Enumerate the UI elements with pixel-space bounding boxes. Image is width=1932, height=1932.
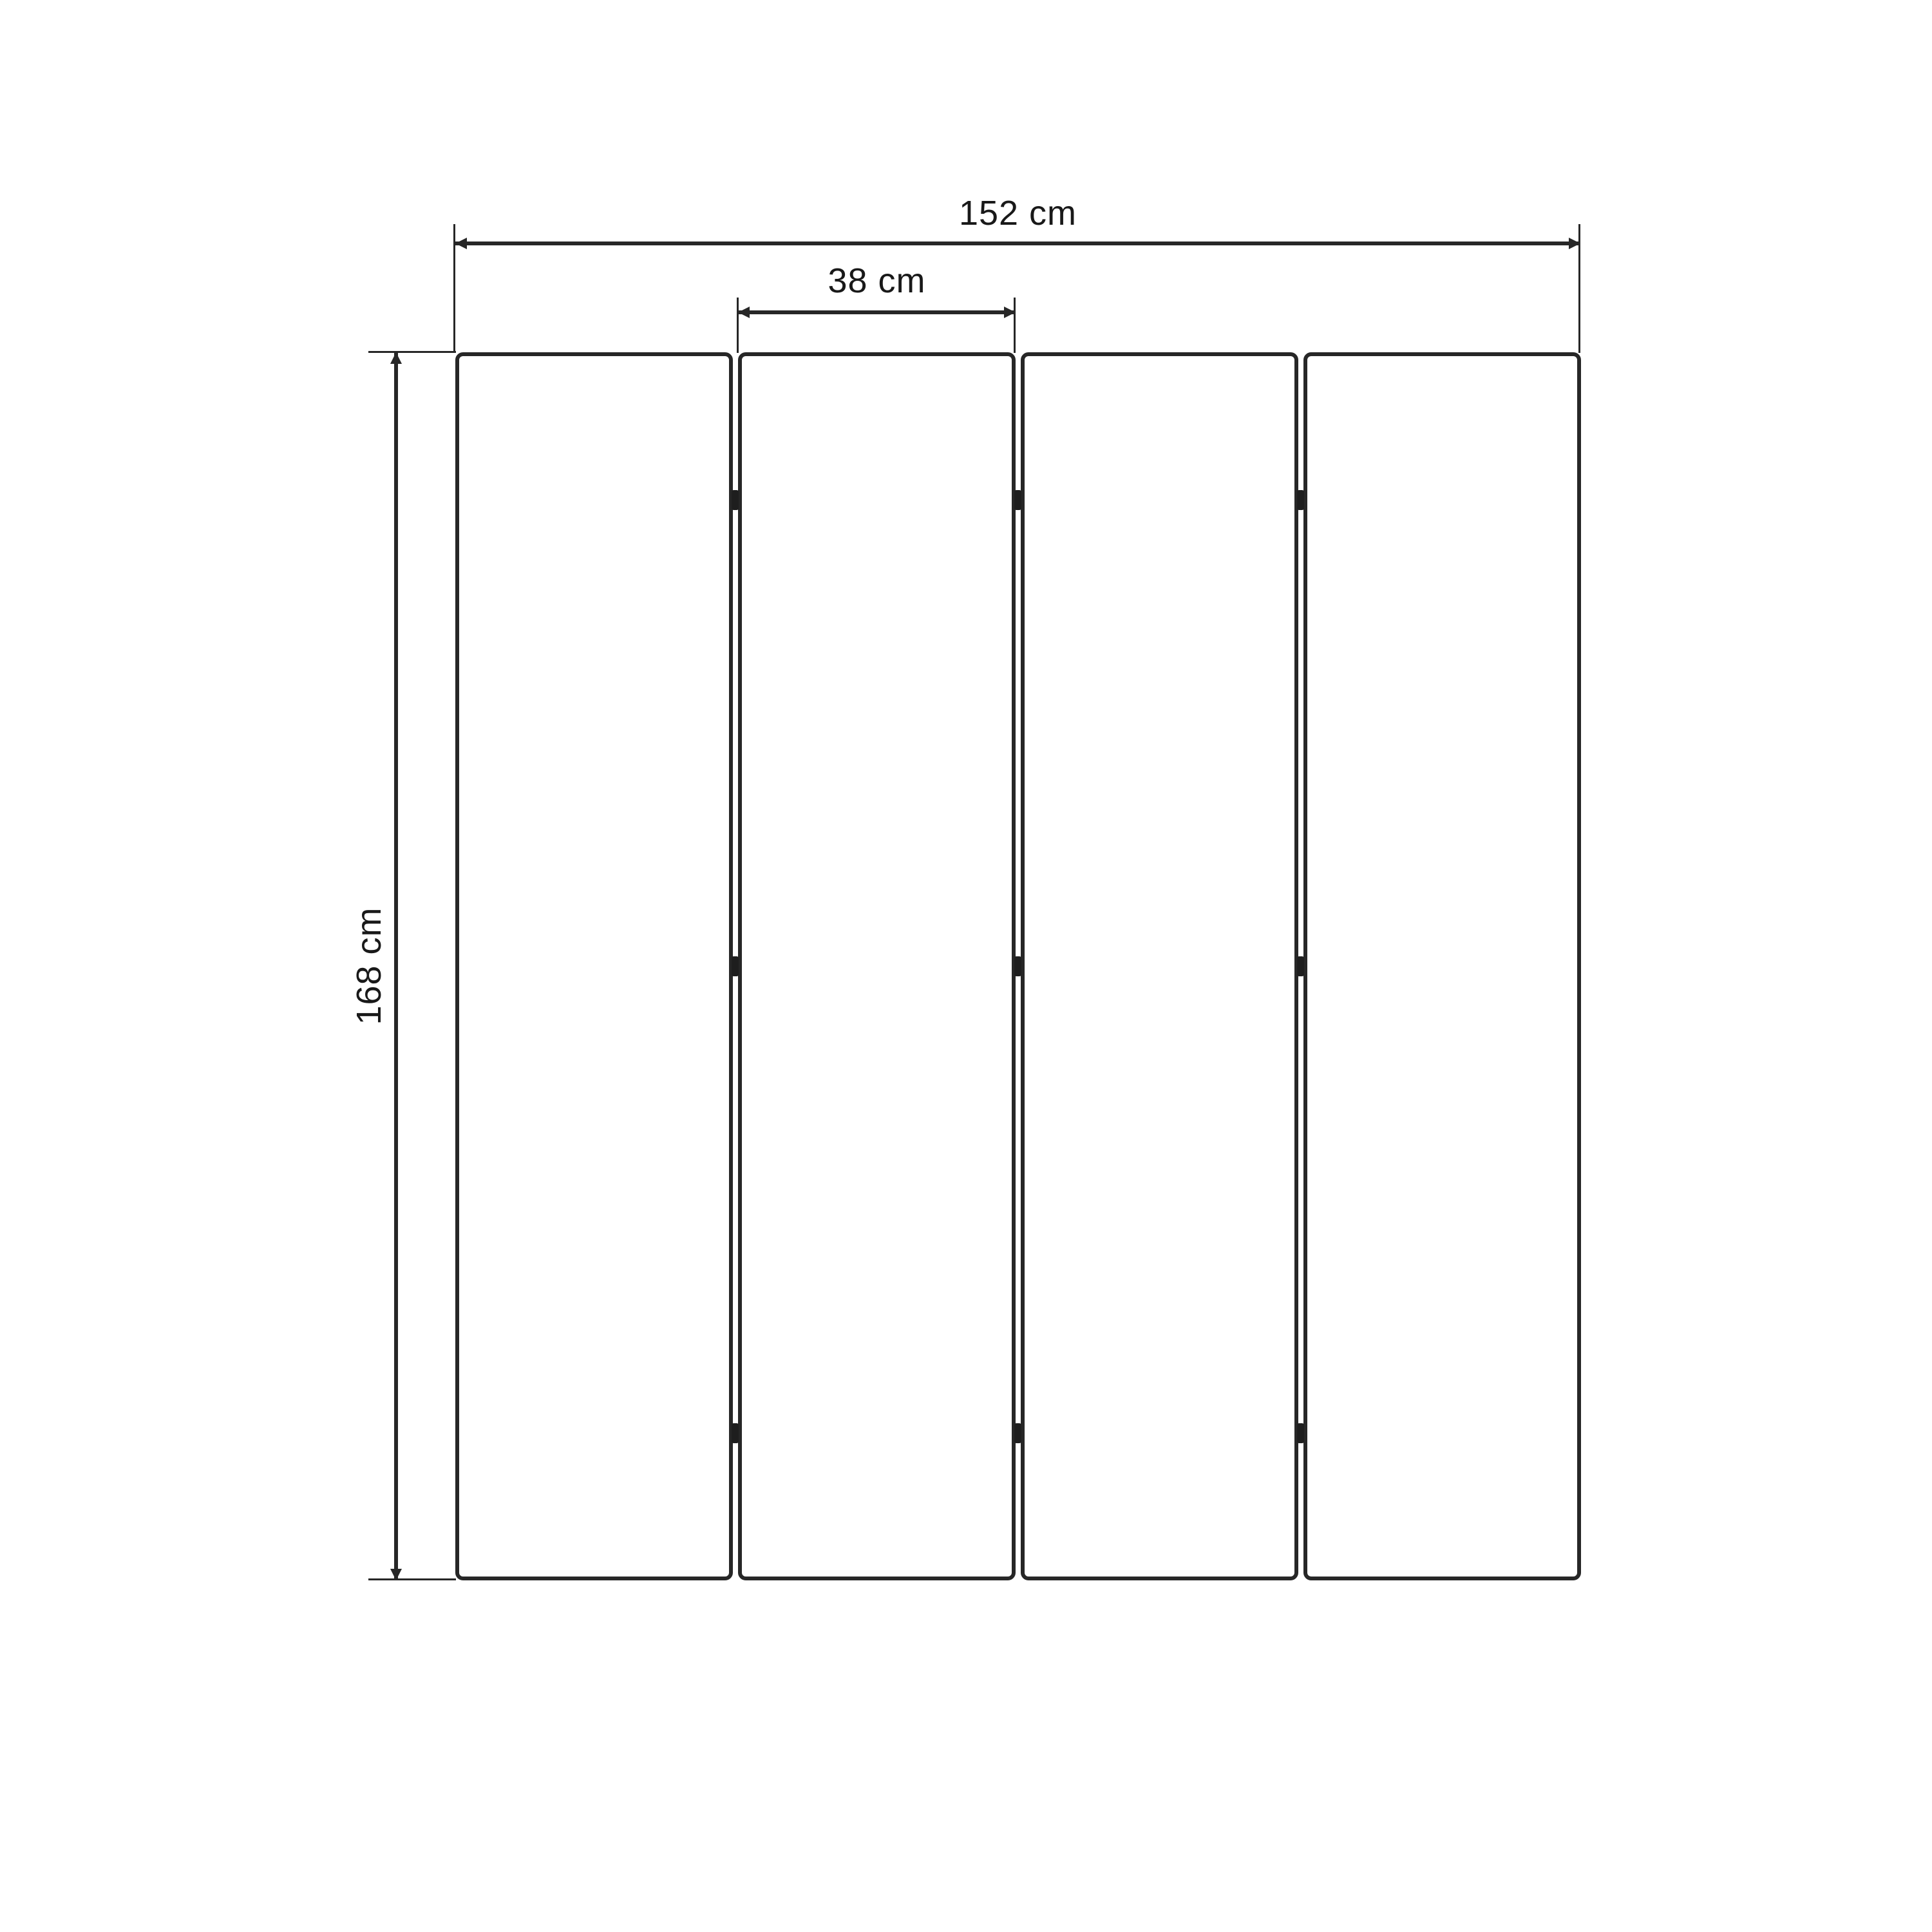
hinge-junction2-middle <box>1014 956 1021 976</box>
panel-width-dimension-line <box>738 310 1016 314</box>
height-extension-line-bottom <box>368 1578 456 1580</box>
hinge-junction3-top <box>1297 490 1304 510</box>
technical-drawing-canvas: 152 cm 38 cm 168 cm <box>0 0 1932 1932</box>
hinge-junction2-bottom <box>1014 1423 1021 1443</box>
panel-width-arrowhead-left-icon <box>738 307 750 318</box>
overall-width-extension-line-right <box>1578 224 1580 353</box>
hinge-junction3-bottom <box>1297 1423 1304 1443</box>
panel-3 <box>1021 352 1298 1580</box>
height-label: 168 cm <box>348 773 390 1159</box>
overall-width-extension-line-left <box>453 224 455 353</box>
panel-width-label: 38 cm <box>738 260 1016 302</box>
panel-4 <box>1303 352 1581 1580</box>
hinge-junction3-middle <box>1297 956 1304 976</box>
height-dimension-line <box>394 352 398 1580</box>
hinge-junction1-middle <box>732 956 739 976</box>
hinge-junction1-top <box>732 490 739 510</box>
panel-2 <box>738 352 1016 1580</box>
hinge-junction1-bottom <box>732 1423 739 1443</box>
overall-width-label: 152 cm <box>455 192 1580 234</box>
panel-width-extension-line-left <box>737 298 739 353</box>
height-arrowhead-top-icon <box>390 352 402 364</box>
overall-width-arrowhead-left-icon <box>455 238 467 249</box>
overall-width-dimension-line <box>455 241 1580 245</box>
panel-width-extension-line-right <box>1014 298 1016 353</box>
hinge-junction2-top <box>1014 490 1021 510</box>
panel-1 <box>455 352 733 1580</box>
height-extension-line-top <box>368 351 456 353</box>
